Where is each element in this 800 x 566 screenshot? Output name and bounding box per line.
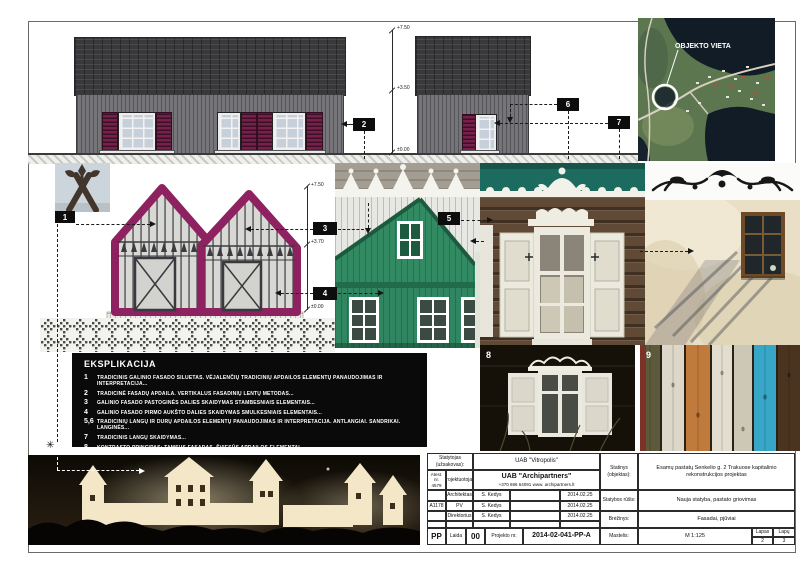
leader-line <box>476 241 484 242</box>
colored-planks-photo: 9 <box>640 345 800 451</box>
leader-arrow <box>365 228 371 234</box>
leader-line <box>640 251 688 252</box>
leader-arrow <box>688 248 694 254</box>
map-label: OBJEKTO VIETA <box>675 43 731 50</box>
role-date: 2014.02.25 <box>560 511 600 521</box>
role-name: S. Kedys <box>473 511 510 521</box>
legend-item: 2TRADICINĖ FASADŲ APDAILA. VERTIKALUS FA… <box>84 390 427 397</box>
shutter <box>258 113 273 151</box>
callout-marker-4: 4 <box>313 287 337 300</box>
leader-line <box>364 131 365 159</box>
level-label: +3.50 <box>397 85 410 91</box>
role-name: S. Kedys <box>473 490 510 501</box>
shutter <box>157 113 171 151</box>
gable-window <box>397 221 423 259</box>
role-date: 2014.02.25 <box>560 490 600 501</box>
leader-line <box>510 104 557 105</box>
legend-item: 4GALINIO FASADO PIRMO AUKŠTO DALIES SKAI… <box>84 409 427 416</box>
dark-wall-window-photo: 8 <box>480 345 635 451</box>
leader-line <box>281 293 313 294</box>
leader-line <box>619 129 620 159</box>
revision-value: 00 <box>466 528 485 545</box>
shutter <box>242 113 256 151</box>
project-no-label: Projekto nr. <box>485 528 523 545</box>
legend-item: 7TRADICINIS LANGŲ SKAIDYMAS... <box>84 434 427 441</box>
client-label: Statytojas (užsakovas): <box>427 453 473 470</box>
shutter <box>463 115 476 152</box>
iron-ornament-strip-photo <box>645 163 800 200</box>
title-block: Statytojas (užsakovas): UAB "Vitropolis"… <box>427 453 795 545</box>
leader-line <box>57 457 58 470</box>
role-date: 2014.02.25 <box>560 501 600 511</box>
leader-line <box>510 104 511 117</box>
leader-line <box>251 229 313 230</box>
legend-box: EKSPLIKACIJA 1TRADICINIS GALINIO FASADO … <box>72 353 427 447</box>
leader-arrow <box>378 290 384 296</box>
object-label: Statinys (objektas): <box>600 453 638 490</box>
callout-marker-2: 2 <box>353 118 375 131</box>
window <box>273 113 305 151</box>
role-label: Architektas <box>446 490 473 501</box>
leader-line <box>568 111 569 159</box>
legend-title: EKSPLIKACIJA <box>84 359 427 369</box>
project-no-value: 2014-02-041-PP-A <box>523 528 600 545</box>
leader-arrow <box>487 217 493 223</box>
drawing-sheet: +7.50 +3.50 ±0.00 OBJEKTO VIET <box>0 0 800 566</box>
legend-item: 1TRADICINIS GALINIO FASADO SILUETAS. VĖJ… <box>84 374 427 387</box>
photo9-label: 9 <box>646 350 651 360</box>
drawing-label: Brėžinys: <box>600 511 638 528</box>
sheet-value: 2 <box>752 537 773 545</box>
callout-marker-3: 3 <box>313 222 337 235</box>
scale-label: Mastelis: <box>600 528 638 545</box>
leader-line <box>76 224 150 225</box>
leader-line <box>338 229 364 230</box>
attestation-cell: Atest. nr.4579 <box>427 470 446 490</box>
level-label: +7.50 <box>311 182 324 188</box>
client-value: UAB "Vitropolis" <box>473 453 600 470</box>
concept-facade-drawing <box>105 178 305 322</box>
log-house-window-photo <box>480 197 645 345</box>
leader-line <box>347 124 353 125</box>
shutter <box>103 113 117 151</box>
stucco-window-shadow-photo <box>645 200 800 345</box>
leader-arrow <box>494 120 500 126</box>
legend-item: 5,6TRADICINIŲ LANGŲ IR DURŲ APDAILOS ELE… <box>84 418 427 431</box>
stage-code: PP <box>427 528 446 545</box>
designer-label: Projektuotojas: <box>446 470 473 490</box>
castle-night-photo <box>28 455 420 545</box>
role-label: Direktorius <box>446 511 473 521</box>
level-label: ±0.00 <box>311 304 323 310</box>
role-label: PV <box>446 501 473 511</box>
fretwork-strip-photo <box>335 163 480 197</box>
scale-value: M 1:125 <box>638 528 752 545</box>
role-name: S. Kedys <box>473 501 510 511</box>
sheets-label: Lapų <box>773 528 795 537</box>
window <box>218 113 240 151</box>
gable-ornament-photo <box>55 163 110 212</box>
callout-marker-6: 6 <box>557 98 579 111</box>
legend-item: 8KONTRASTO PRINCIPAS: TAMSUS FASADAS, ŠV… <box>84 444 427 451</box>
object-value: Esamų pastatų Senkelio g. 2 Trakuose kap… <box>638 453 795 490</box>
site-location-map: OBJEKTO VIETA <box>638 18 775 161</box>
legend-item: 3GALINIO FASADO PASTOGINĖS DALIES SKAIDY… <box>84 399 427 406</box>
callout-marker-7: 7 <box>608 116 630 129</box>
level-label: +3.70 <box>311 239 324 245</box>
level-label: +7.50 <box>397 25 410 31</box>
small-window <box>741 214 785 280</box>
fold-mark-icon: ✳ <box>46 440 54 451</box>
elevation2-roof <box>416 37 530 95</box>
designer-cell: UAB "Archipartners" +370 686 64091 www. … <box>473 470 600 490</box>
designer-contacts: +370 686 64091 www. archipartners.lt <box>499 482 575 488</box>
photo8-label: 8 <box>486 350 491 360</box>
level-label: ±0.00 <box>397 147 409 153</box>
leader-line <box>368 203 369 228</box>
window <box>476 115 496 152</box>
leader-arrow <box>139 468 145 474</box>
baltic-pattern-band <box>40 318 335 352</box>
leader-line <box>338 293 378 294</box>
elevation1-roof <box>75 38 345 95</box>
callout-marker-5: 5 <box>438 212 460 225</box>
construction-type-label: Statybos rūšis: <box>600 490 638 511</box>
construction-type-value: Nauja statyba, pastato griovimas <box>638 490 795 511</box>
revision-label: Laida <box>446 528 466 545</box>
sheets-value: 3 <box>773 537 795 545</box>
cert-number: A1178 <box>427 501 446 511</box>
leader-line <box>500 123 608 124</box>
sheet-label: Lapas <box>752 528 773 537</box>
leader-arrow <box>150 221 156 227</box>
leader-line <box>57 224 58 442</box>
shutter <box>307 113 322 151</box>
leader-line <box>57 470 139 471</box>
window <box>119 113 155 151</box>
leader-line <box>461 220 486 221</box>
designer-name: UAB "Archipartners" <box>502 473 572 482</box>
callout-marker-1: 1 <box>55 211 75 223</box>
drawing-value: Fasadai, pjūviai <box>638 511 795 528</box>
lace-strip-photo <box>480 163 645 197</box>
